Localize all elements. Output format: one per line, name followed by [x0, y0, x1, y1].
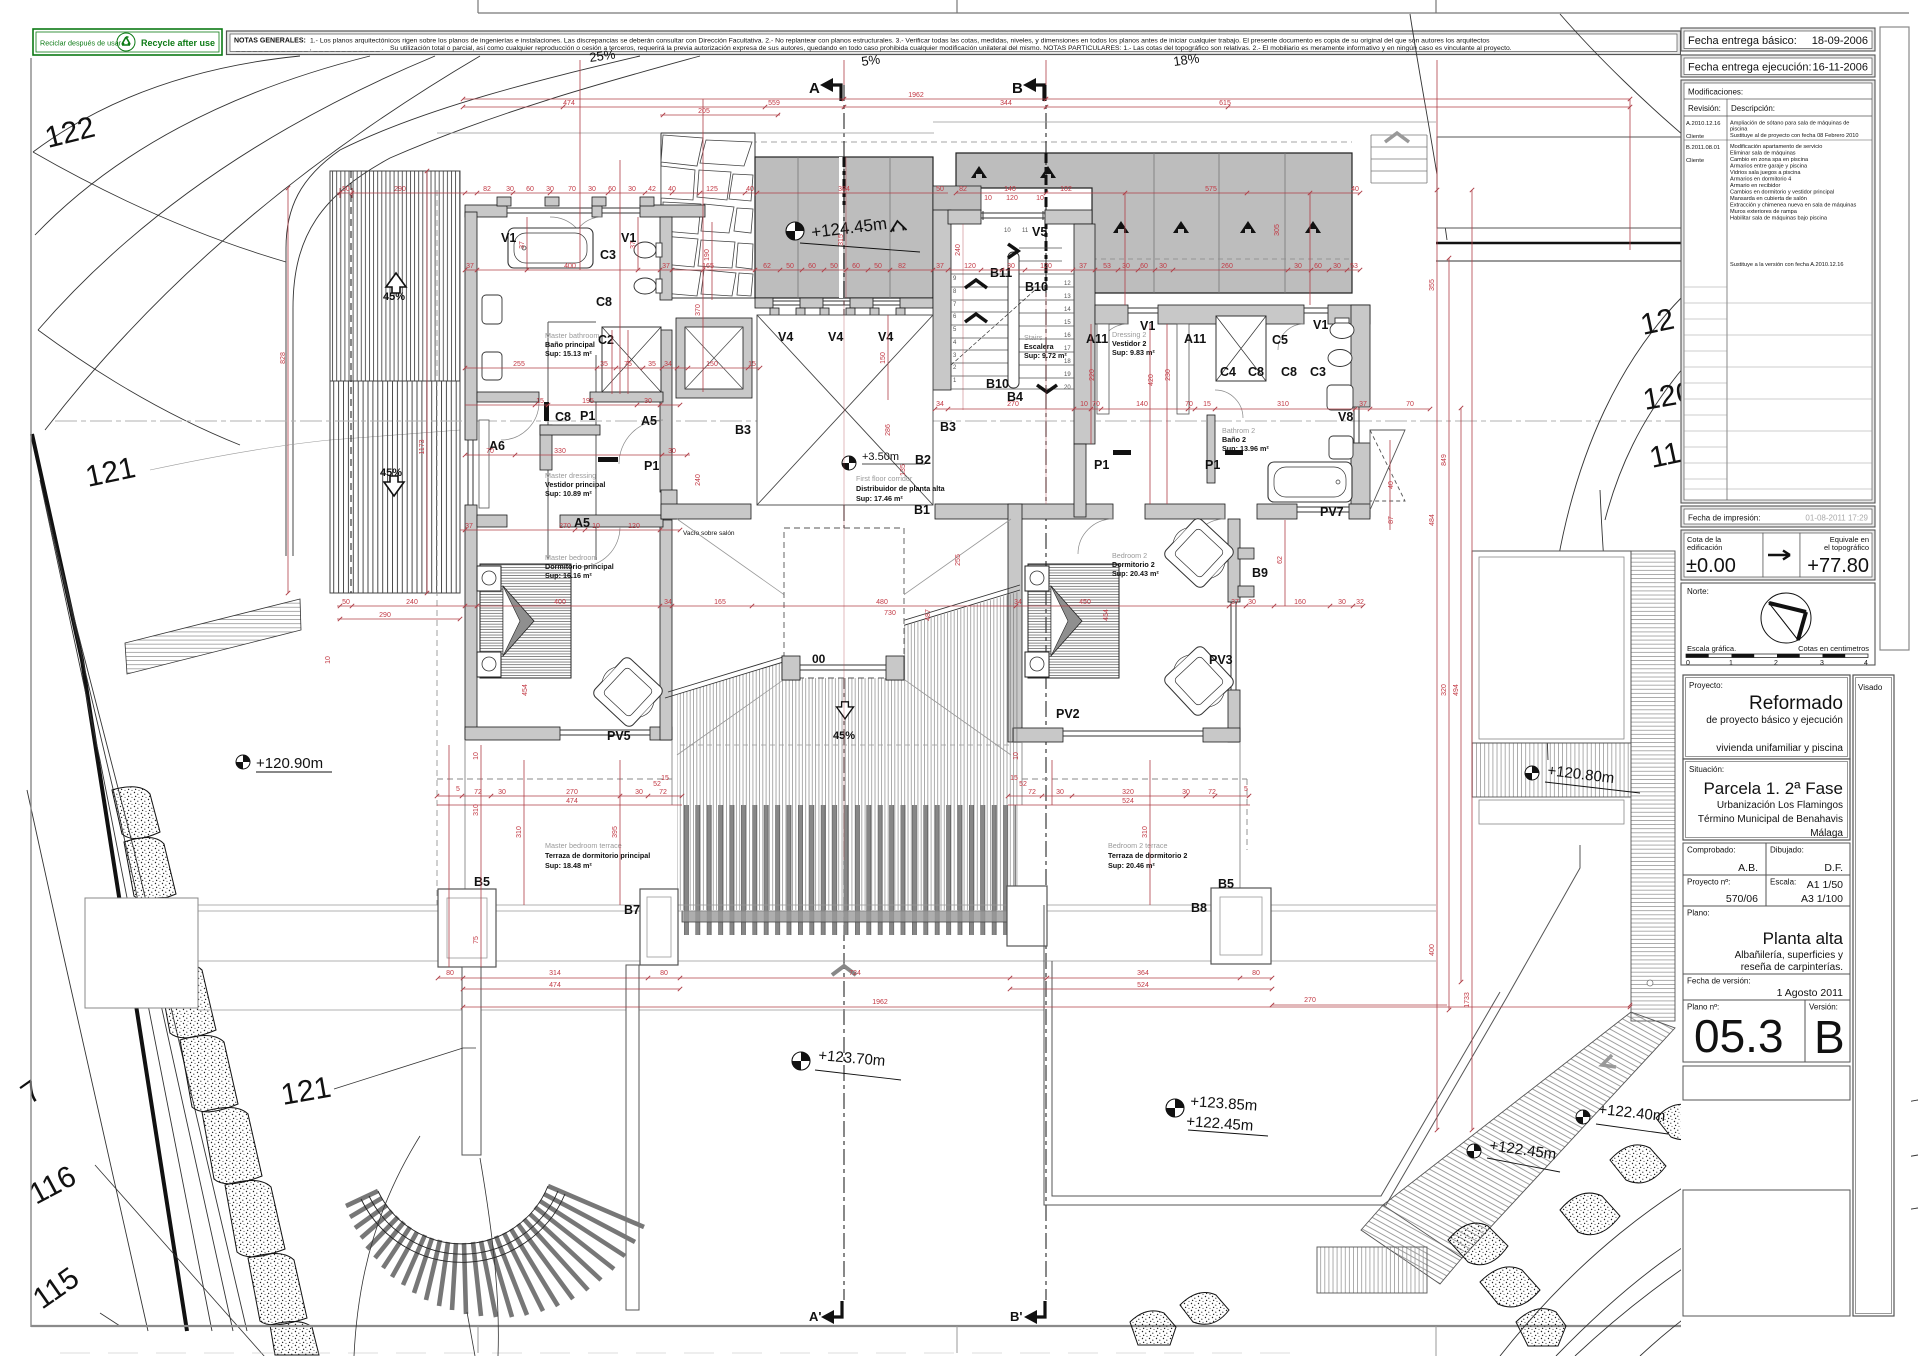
svg-text:87: 87	[1388, 516, 1395, 524]
svg-text:30: 30	[1182, 789, 1190, 796]
svg-text:384: 384	[838, 186, 850, 193]
svg-text:70: 70	[1092, 401, 1100, 408]
svg-text:1 Agosto 2011: 1 Agosto 2011	[1777, 987, 1844, 999]
svg-text:140: 140	[1004, 186, 1016, 193]
svg-text:30: 30	[1007, 263, 1015, 270]
svg-text:Su utilización total o parcial: Su utilización total o parcial, así como…	[390, 45, 1512, 52]
svg-text:15: 15	[1064, 320, 1071, 326]
svg-text:30: 30	[1338, 599, 1346, 606]
svg-text:62: 62	[763, 263, 771, 270]
svg-text:125: 125	[706, 186, 718, 193]
svg-text:849: 849	[1441, 454, 1448, 466]
svg-text:V4: V4	[878, 330, 893, 344]
svg-text:230: 230	[1165, 369, 1172, 381]
svg-text:Escala gráfica.: Escala gráfica.	[1687, 644, 1736, 653]
svg-text:70: 70	[486, 448, 494, 455]
svg-text:305: 305	[1274, 224, 1281, 236]
svg-text:72: 72	[474, 789, 482, 796]
svg-text:454: 454	[522, 684, 529, 696]
svg-text:B: B	[1012, 80, 1023, 97]
svg-text:474: 474	[566, 798, 578, 805]
svg-text:Master bathroom: Master bathroom	[545, 331, 599, 340]
svg-text:5: 5	[456, 786, 460, 793]
svg-text:piscina: piscina	[1730, 127, 1748, 133]
svg-text:5%: 5%	[860, 51, 881, 69]
svg-text:12: 12	[1064, 281, 1071, 287]
svg-text:D.F.: D.F.	[1824, 862, 1843, 874]
svg-text:474: 474	[563, 100, 575, 107]
svg-text:Dormitorio principal: Dormitorio principal	[545, 562, 614, 571]
svg-text:82: 82	[959, 186, 967, 193]
svg-text:Escala:: Escala:	[1770, 878, 1796, 887]
svg-text:Terraza de dormitorio principa: Terraza de dormitorio principal	[545, 851, 650, 860]
svg-text:34: 34	[1014, 599, 1022, 606]
svg-text:Muros exteriores de rampa: Muros exteriores de rampa	[1730, 209, 1798, 215]
svg-text:00: 00	[812, 652, 826, 666]
svg-text:Bedroom 2 terrace: Bedroom 2 terrace	[1108, 841, 1168, 850]
svg-text:Bedroom 2: Bedroom 2	[1112, 551, 1147, 560]
svg-text:320: 320	[1441, 684, 1448, 696]
svg-text:A: A	[809, 80, 820, 97]
svg-text:45%: 45%	[383, 291, 405, 303]
svg-text:Sup: 9.83 m²: Sup: 9.83 m²	[1112, 348, 1155, 357]
svg-text:72: 72	[1208, 789, 1216, 796]
svg-text:270: 270	[1007, 401, 1019, 408]
svg-text:72: 72	[1028, 789, 1036, 796]
svg-text:570/06: 570/06	[1726, 893, 1758, 905]
svg-text:30: 30	[1056, 789, 1064, 796]
svg-text:Cliente: Cliente	[1686, 158, 1704, 164]
svg-text:364: 364	[1137, 970, 1149, 977]
svg-text:37: 37	[630, 241, 637, 249]
svg-text:B: B	[1814, 1011, 1845, 1063]
svg-text:Sup: 17.46 m²: Sup: 17.46 m²	[856, 494, 903, 503]
svg-text:320: 320	[1122, 789, 1134, 796]
svg-text:C8: C8	[1281, 365, 1297, 379]
svg-text:53: 53	[1350, 263, 1358, 270]
svg-text:474: 474	[549, 982, 561, 989]
svg-text:Parcela 1. 2ª Fase: Parcela 1. 2ª Fase	[1703, 779, 1843, 798]
svg-text:Sustituye al de proyecto con f: Sustituye al de proyecto con fecha 08 Fe…	[1730, 133, 1858, 139]
svg-text:Master bedroom: Master bedroom	[545, 553, 597, 562]
svg-text:5: 5	[1244, 786, 1248, 793]
svg-text:80: 80	[660, 970, 668, 977]
svg-text:60: 60	[808, 263, 816, 270]
svg-text:PV5: PV5	[607, 729, 631, 743]
svg-text:Málaga: Málaga	[1810, 828, 1843, 839]
svg-text:Habilitar sala de máquinas baj: Habilitar sala de máquinas bajo piscina	[1730, 216, 1828, 222]
svg-text:05.3: 05.3	[1694, 1010, 1784, 1062]
svg-text:+120.90m: +120.90m	[256, 755, 323, 772]
svg-text:220: 220	[1089, 369, 1096, 381]
svg-text:140: 140	[1136, 401, 1148, 408]
svg-text:V5: V5	[1032, 225, 1047, 239]
svg-text:10: 10	[1080, 401, 1088, 408]
svg-text:B2: B2	[915, 453, 931, 467]
svg-text:60: 60	[1314, 263, 1322, 270]
svg-text:165: 165	[714, 599, 726, 606]
svg-text:P1: P1	[1205, 458, 1220, 472]
svg-text:40: 40	[1388, 481, 1395, 489]
svg-text:60: 60	[608, 186, 616, 193]
svg-text:PV7: PV7	[1320, 505, 1344, 519]
svg-text:314: 314	[549, 970, 561, 977]
svg-text:80: 80	[446, 970, 454, 977]
svg-text:15: 15	[661, 775, 669, 782]
svg-text:30: 30	[1248, 599, 1256, 606]
svg-text:B8: B8	[1191, 901, 1207, 915]
svg-text:_ _ _ _ _ _ _ _ _ _ _ _ _ ,: _ _ _ _ _ _ _ _ _ _ _ _ _ , _ _ _ _ _ _ …	[235, 45, 383, 52]
svg-text:30: 30	[1122, 263, 1130, 270]
svg-text:60: 60	[526, 186, 534, 193]
svg-text:16-11-2006: 16-11-2006	[1813, 62, 1868, 74]
svg-text:290: 290	[394, 186, 406, 193]
svg-text:15: 15	[536, 398, 544, 405]
svg-text:270: 270	[1304, 997, 1316, 1004]
svg-text:150: 150	[706, 361, 718, 368]
svg-text:Comprobado:: Comprobado:	[1687, 846, 1735, 855]
svg-text:C8: C8	[1248, 365, 1264, 379]
svg-text:102: 102	[1060, 186, 1072, 193]
svg-text:PV3: PV3	[1209, 653, 1233, 667]
svg-text:70: 70	[568, 186, 576, 193]
svg-text:B.2011.08.01: B.2011.08.01	[1686, 145, 1720, 151]
svg-text:+3.50m: +3.50m	[862, 451, 899, 463]
svg-text:Armarios en dormitorio 4: Armarios en dormitorio 4	[1730, 177, 1791, 183]
svg-text:11: 11	[1022, 228, 1029, 234]
svg-text:828: 828	[280, 352, 287, 364]
svg-text:Dibujado:: Dibujado:	[1770, 846, 1804, 855]
svg-text:Stairs: Stairs	[1024, 333, 1043, 342]
svg-text:2: 2	[1774, 660, 1778, 667]
svg-text:Ampliación de sótano para sala: Ampliación de sótano para sala de máquin…	[1730, 121, 1849, 127]
svg-text:310: 310	[1142, 826, 1149, 838]
svg-text:3: 3	[1820, 660, 1824, 667]
svg-text:Cliente: Cliente	[1686, 134, 1704, 140]
svg-text:35: 35	[648, 361, 656, 368]
svg-text:30: 30	[1159, 263, 1167, 270]
svg-text:15: 15	[1203, 401, 1211, 408]
svg-text:±0.00: ±0.00	[1686, 555, 1736, 577]
svg-text:30: 30	[644, 398, 652, 405]
svg-text:V8: V8	[1338, 410, 1353, 424]
svg-text:205: 205	[698, 108, 710, 115]
svg-text:Visado: Visado	[1858, 683, 1883, 692]
svg-text:135: 135	[900, 464, 907, 476]
svg-text:344: 344	[1000, 100, 1012, 107]
svg-text:16: 16	[1064, 333, 1071, 339]
svg-text:454: 454	[1103, 609, 1110, 621]
svg-text:120: 120	[1040, 263, 1052, 270]
svg-text:70: 70	[1406, 401, 1414, 408]
svg-text:37: 37	[662, 263, 670, 270]
svg-text:255: 255	[955, 554, 962, 566]
svg-text:37: 37	[466, 263, 474, 270]
svg-text:315: 315	[838, 234, 845, 246]
svg-text:240: 240	[406, 599, 418, 606]
svg-text:Cambio en zona spa en piscina: Cambio en zona spa en piscina	[1730, 157, 1809, 163]
svg-text:C5: C5	[1272, 333, 1288, 347]
svg-text:A1 1/50: A1 1/50	[1807, 879, 1843, 891]
svg-text:10: 10	[984, 195, 992, 202]
svg-text:37: 37	[1359, 401, 1367, 408]
svg-text:B': B'	[1010, 1309, 1022, 1324]
svg-text:Norte:: Norte:	[1687, 587, 1709, 596]
svg-text:30: 30	[546, 186, 554, 193]
svg-text:18-09-2006: 18-09-2006	[1812, 35, 1868, 47]
svg-text:50: 50	[936, 186, 944, 193]
svg-text:Eliminar sala de máquinas: Eliminar sala de máquinas	[1730, 151, 1796, 157]
svg-text:52: 52	[1019, 781, 1027, 788]
svg-text:400: 400	[564, 263, 576, 270]
svg-text:Sustituye a la versión con fec: Sustituye a la versión con fecha A.2010.…	[1730, 262, 1844, 268]
svg-text:75: 75	[473, 936, 480, 944]
svg-text:Término Municipal de Benahavis: Término Municipal de Benahavis	[1698, 814, 1843, 825]
svg-text:82: 82	[483, 186, 491, 193]
svg-text:Bathrom 2: Bathrom 2	[1222, 426, 1255, 435]
svg-text:13: 13	[1064, 294, 1071, 300]
svg-text:Dormitorio 2: Dormitorio 2	[1112, 560, 1155, 569]
svg-text:Vidrios sala juegos a piscina: Vidrios sala juegos a piscina	[1730, 170, 1801, 176]
svg-text:Reciclar después de usar: Reciclar después de usar	[40, 39, 122, 48]
svg-text:el topográfico: el topográfico	[1824, 543, 1869, 552]
svg-text:240: 240	[955, 244, 962, 256]
svg-text:52: 52	[653, 781, 661, 788]
svg-text:edificación: edificación	[1687, 543, 1722, 552]
svg-text:reseña de carpinterías.: reseña de carpinterías.	[1741, 962, 1843, 973]
svg-text:Sup: 16.16 m²: Sup: 16.16 m²	[545, 571, 592, 580]
svg-text:494: 494	[1453, 684, 1460, 696]
svg-text:B3: B3	[940, 420, 956, 434]
svg-text:310: 310	[516, 826, 523, 838]
svg-text:C3: C3	[1310, 365, 1326, 379]
svg-text:01-08-2011 17:29: 01-08-2011 17:29	[1805, 514, 1868, 523]
svg-text:Revisión:: Revisión:	[1688, 104, 1721, 113]
svg-text:559: 559	[768, 100, 780, 107]
svg-text:Sup: 20.46 m²: Sup: 20.46 m²	[1108, 861, 1155, 870]
svg-text:10: 10	[1004, 228, 1011, 234]
svg-text:+77.80: +77.80	[1807, 555, 1869, 577]
svg-text:34: 34	[664, 361, 672, 368]
svg-text:Fecha entrega básico:: Fecha entrega básico:	[1688, 35, 1797, 47]
svg-text:10: 10	[325, 656, 332, 664]
svg-text:B9: B9	[1252, 566, 1268, 580]
svg-text:20: 20	[1064, 385, 1071, 391]
svg-text:Vestidor principal: Vestidor principal	[545, 480, 605, 489]
svg-text:34: 34	[664, 599, 672, 606]
svg-text:P1: P1	[644, 459, 659, 473]
svg-text:vivienda unifamiliar y piscina: vivienda unifamiliar y piscina	[1716, 743, 1843, 754]
svg-text:30: 30	[635, 789, 643, 796]
svg-text:355: 355	[1429, 279, 1436, 291]
svg-text:B7: B7	[624, 903, 640, 917]
svg-text:Fecha de versión:: Fecha de versión:	[1687, 977, 1751, 986]
svg-text:50: 50	[830, 263, 838, 270]
svg-text:Armario en recibidor: Armario en recibidor	[1730, 183, 1781, 189]
svg-text:37: 37	[519, 241, 526, 249]
svg-text:V1: V1	[1313, 318, 1328, 332]
svg-text:395: 395	[612, 826, 619, 838]
svg-text:A': A'	[809, 1309, 821, 1324]
svg-text:Sup: 10.89 m²: Sup: 10.89 m²	[545, 489, 592, 498]
svg-text:Situación:: Situación:	[1689, 765, 1724, 774]
svg-text:Planta alta: Planta alta	[1763, 929, 1844, 948]
svg-text:Recycle after use: Recycle after use	[141, 38, 215, 48]
svg-text:40: 40	[746, 186, 754, 193]
svg-text:C3: C3	[600, 248, 616, 262]
svg-text:480: 480	[876, 599, 888, 606]
svg-text:37: 37	[1079, 263, 1087, 270]
svg-text:C8: C8	[555, 410, 571, 424]
svg-text:10: 10	[1013, 752, 1020, 760]
svg-text:Master dressing: Master dressing	[545, 471, 596, 480]
svg-text:160: 160	[1294, 599, 1306, 606]
svg-text:Distribuidor de planta alta: Distribuidor de planta alta	[856, 484, 946, 493]
svg-text:Modificación apartamento de se: Modificación apartamento de servicio	[1730, 144, 1822, 150]
svg-text:1733: 1733	[1464, 992, 1471, 1008]
svg-text:72: 72	[659, 789, 667, 796]
svg-text:37: 37	[1231, 599, 1239, 606]
svg-text:1: 1	[1729, 660, 1733, 667]
svg-text:Armarios entre garaje y piscin: Armarios entre garaje y piscina	[1730, 164, 1808, 170]
svg-text:15: 15	[1010, 775, 1018, 782]
svg-text:12: 12	[1638, 303, 1678, 342]
svg-text:4: 4	[1864, 660, 1868, 667]
svg-text:50: 50	[874, 263, 882, 270]
svg-text:270: 270	[559, 523, 571, 530]
svg-text:C8: C8	[596, 295, 612, 309]
svg-text:B10: B10	[986, 377, 1009, 391]
svg-text:260: 260	[1221, 263, 1233, 270]
svg-text:Proyecto nº:: Proyecto nº:	[1687, 878, 1730, 887]
svg-text:70: 70	[1185, 401, 1193, 408]
svg-text:400: 400	[554, 599, 566, 606]
svg-text:30: 30	[1333, 263, 1341, 270]
svg-text:Cotas en centimetros: Cotas en centimetros	[1798, 644, 1869, 653]
svg-text:V4: V4	[828, 330, 843, 344]
svg-text:B5: B5	[1218, 877, 1234, 891]
svg-text:Vacío sobre salón: Vacío sobre salón	[683, 530, 735, 537]
svg-text:290: 290	[379, 612, 391, 619]
svg-text:60: 60	[852, 263, 860, 270]
svg-text:190: 190	[704, 249, 711, 261]
svg-text:A11: A11	[1184, 332, 1206, 346]
svg-text:30: 30	[1294, 263, 1302, 270]
svg-text:30: 30	[498, 789, 506, 796]
svg-text:37: 37	[465, 523, 473, 530]
svg-text:286: 286	[885, 424, 892, 436]
svg-text:50: 50	[342, 599, 350, 606]
svg-text:240: 240	[695, 474, 702, 486]
svg-text:34: 34	[936, 401, 944, 408]
svg-text:30: 30	[506, 186, 514, 193]
svg-text:524: 524	[1122, 798, 1134, 805]
svg-text:30: 30	[588, 186, 596, 193]
svg-text:35: 35	[600, 361, 608, 368]
svg-text:370: 370	[695, 304, 702, 316]
svg-text:30: 30	[668, 448, 676, 455]
svg-text:1173: 1173	[419, 439, 426, 454]
svg-text:de proyecto básico y ejecución: de proyecto básico y ejecución	[1706, 715, 1843, 726]
svg-text:Terraza de dormitorio 2: Terraza de dormitorio 2	[1108, 851, 1187, 860]
svg-text:30: 30	[628, 186, 636, 193]
svg-text:A11: A11	[1086, 332, 1108, 346]
svg-text:Baño 2: Baño 2	[1222, 435, 1246, 444]
svg-text:724: 724	[849, 970, 861, 977]
svg-text:484: 484	[1429, 514, 1436, 526]
svg-text:10: 10	[473, 752, 480, 760]
svg-text:75: 75	[624, 361, 632, 368]
svg-text:450: 450	[1079, 599, 1091, 606]
svg-text:575: 575	[1205, 186, 1217, 193]
svg-text:50: 50	[786, 263, 794, 270]
svg-text:Fecha de impresión:: Fecha de impresión:	[1688, 514, 1760, 523]
svg-text:Sup: 18.48 m²: Sup: 18.48 m²	[545, 861, 592, 870]
svg-text:120: 120	[1006, 195, 1018, 202]
svg-text:NOTAS GENERALES:: NOTAS GENERALES:	[234, 37, 306, 44]
svg-text:310: 310	[473, 804, 480, 816]
svg-text:1962: 1962	[872, 999, 888, 1006]
svg-text:42: 42	[648, 186, 656, 193]
svg-text:PV2: PV2	[1056, 707, 1080, 721]
svg-text:255: 255	[513, 361, 525, 368]
svg-text:19: 19	[1064, 372, 1071, 378]
svg-text:420: 420	[1148, 374, 1155, 386]
svg-text:B3: B3	[735, 423, 751, 437]
svg-text:195: 195	[582, 398, 594, 405]
svg-text:Escalera: Escalera	[1024, 342, 1055, 351]
svg-text:Vestidor 2: Vestidor 2	[1112, 339, 1146, 348]
svg-text:487: 487	[925, 609, 932, 621]
svg-text:Sup: 13.96 m²: Sup: 13.96 m²	[1222, 444, 1269, 453]
svg-text:53: 53	[1103, 263, 1111, 270]
svg-text:C4: C4	[1220, 365, 1236, 379]
svg-text:330: 330	[554, 448, 566, 455]
svg-text:40: 40	[668, 186, 676, 193]
svg-text:B1: B1	[914, 503, 930, 517]
svg-text:Albañilería, superficies y: Albañilería, superficies y	[1735, 950, 1843, 961]
svg-text:Modificaciones:: Modificaciones:	[1688, 88, 1743, 97]
svg-text:Master bedroom terrace: Master bedroom terrace	[545, 841, 622, 850]
svg-text:165: 165	[702, 263, 714, 270]
svg-text:Plano:: Plano:	[1687, 909, 1710, 918]
svg-text:150: 150	[880, 352, 887, 364]
svg-text:Cambios en dormitorio y vestid: Cambios en dormitorio y vestidor princip…	[1730, 190, 1834, 196]
svg-text:Descripción:: Descripción:	[1731, 104, 1775, 113]
svg-text:40: 40	[1351, 186, 1359, 193]
svg-text:A3 1/100: A3 1/100	[1801, 893, 1843, 905]
svg-text:Sup: 20.43 m²: Sup: 20.43 m²	[1112, 569, 1159, 578]
svg-text:15: 15	[748, 361, 756, 368]
svg-text:0: 0	[1686, 660, 1690, 667]
svg-text:Proyecto:: Proyecto:	[1689, 681, 1723, 690]
svg-text:A.2010.12.16: A.2010.12.16	[1686, 121, 1721, 127]
svg-text:10: 10	[1036, 195, 1044, 202]
svg-text:B5: B5	[474, 875, 490, 889]
svg-text:50: 50	[342, 186, 350, 193]
svg-text:V1: V1	[501, 231, 516, 245]
svg-text:A.B.: A.B.	[1738, 862, 1758, 874]
svg-text:120: 120	[964, 263, 976, 270]
svg-text:B10: B10	[1025, 280, 1048, 294]
svg-text:60: 60	[1140, 263, 1148, 270]
svg-text:P1: P1	[580, 409, 595, 423]
svg-text:Baño principal: Baño principal	[545, 340, 595, 349]
svg-text:730: 730	[884, 610, 896, 617]
svg-text:10: 10	[592, 523, 600, 530]
svg-text:270: 270	[566, 789, 578, 796]
svg-text:V4: V4	[778, 330, 793, 344]
